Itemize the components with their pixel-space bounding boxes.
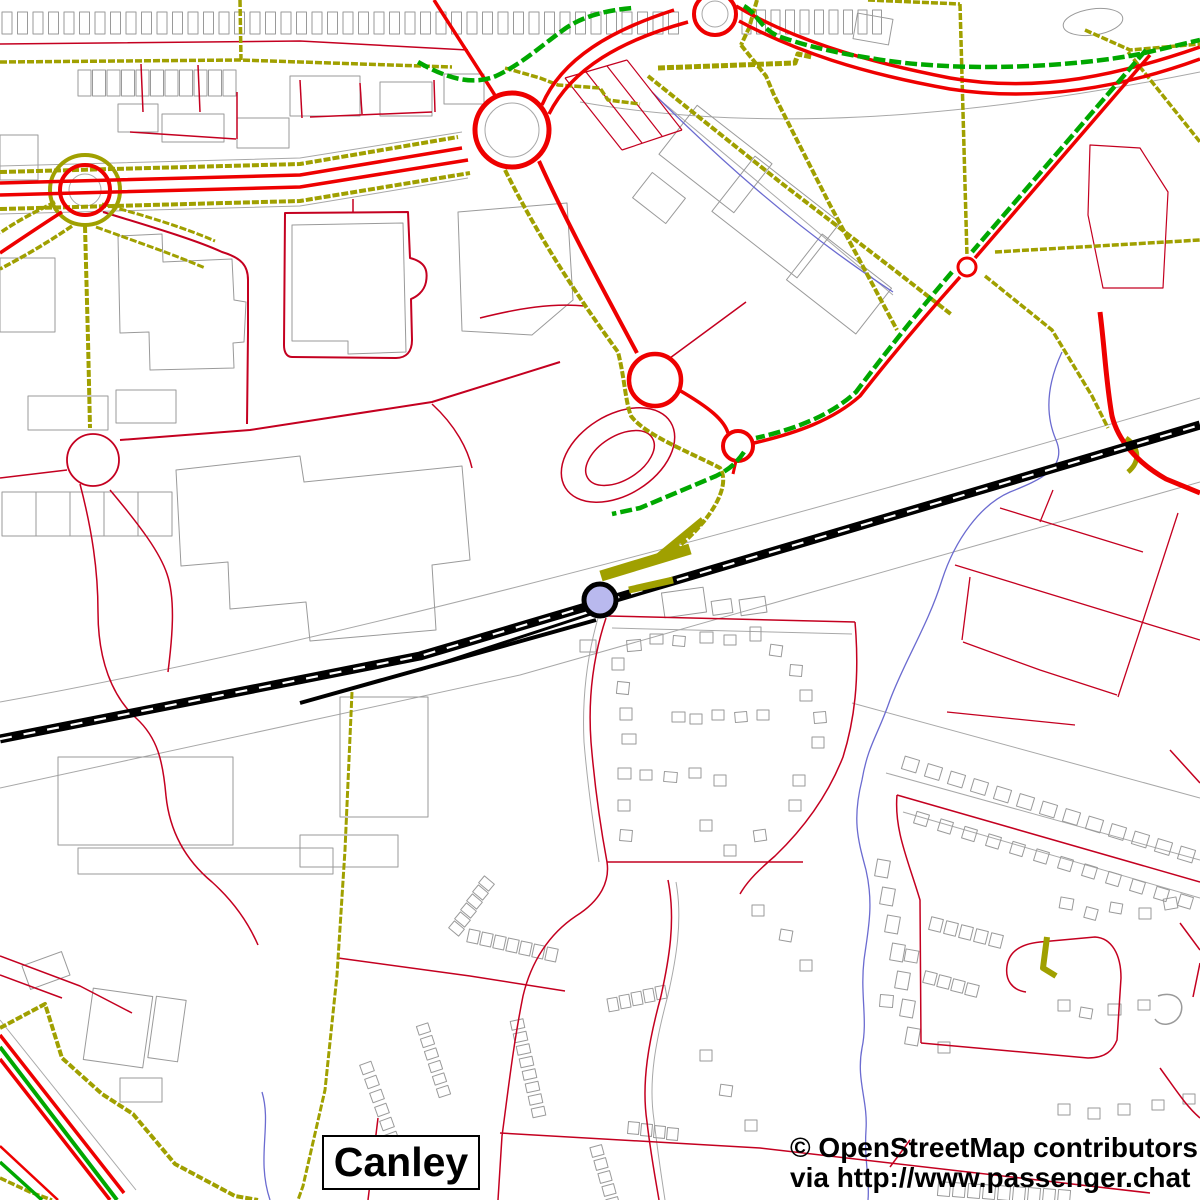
house-row [974,929,989,945]
houses-scattered [757,710,769,720]
minor-road [300,80,302,118]
buildings-bottom-left [148,996,186,1062]
building-station-side [661,587,706,618]
house-row [643,988,655,1003]
map-canvas [0,0,1200,1200]
building-ladder [104,492,138,536]
path-zigzag-top [505,68,640,104]
house-row [506,938,519,953]
terrace-row-top [607,12,617,34]
house-row [598,1171,612,1184]
roundabout-center [629,354,681,406]
houses-scattered [800,960,812,971]
terrace-row-top [467,12,477,34]
roundabout-big [475,93,549,167]
street-s1 [608,616,855,622]
house-row [360,1061,375,1075]
terrace-row-second [165,70,178,96]
houses-scattered [1152,1100,1164,1110]
buildings-left-band [28,396,108,430]
stream-bottom-left [262,1092,270,1200]
house-row [875,859,891,878]
houses-scattered [712,710,724,720]
houses-scattered [779,929,793,942]
house-row [1178,894,1194,909]
houses-scattered [745,1120,757,1131]
terrace-row-second [223,70,236,96]
buildings-bottom-left [340,697,428,817]
station-marker [584,584,616,616]
road-top-lane [0,41,468,50]
terrace-row-top [64,12,74,34]
path-bar-top [658,54,812,68]
houses-scattered [812,737,824,748]
house-row [1131,831,1149,848]
buildings-left-band [116,390,176,423]
house-row [365,1075,380,1089]
building-station-side [711,599,733,616]
terrace-row-top [126,12,136,34]
house-row [519,941,532,956]
terrace-row-second [93,70,106,96]
house-row [1154,839,1172,856]
building-square [292,223,406,354]
house-row [929,917,944,933]
house-row [631,991,643,1006]
house-row [531,1106,546,1118]
houses-scattered [793,775,805,786]
path-topright-vertical [960,4,967,256]
buildings-bottom-left [78,848,333,874]
buildings-top-left [237,118,289,148]
terrace-row-second [194,70,207,96]
houses-scattered [690,714,702,724]
campus-road-south [80,484,166,796]
parking-oval-inner [576,419,664,497]
terrace-row-top [18,12,28,34]
house-row [370,1089,385,1103]
houses-scattered [1109,902,1123,914]
houses-scattered [1079,1007,1093,1019]
path-to-bridge [985,276,1108,428]
path-topright-edge [868,0,960,4]
house-row [895,971,911,990]
building-campus [176,456,470,641]
houses-scattered [1118,1104,1130,1115]
building-east-block [458,203,573,335]
corner-road-b [0,975,62,998]
buildings-top-left [380,82,432,116]
houses-scattered [622,734,636,744]
terrace-row-top [328,12,338,34]
house-row [480,932,493,947]
house-row [959,925,974,941]
house-row [449,921,465,936]
houses-scattered [714,775,726,786]
house-row [1039,801,1057,818]
terrace-row-top [188,12,198,34]
houses-scattered [620,708,632,720]
path-bigroundabout-south [505,170,723,557]
house-row [432,1073,446,1085]
road-southwest-exit [0,212,62,253]
terrace-row-top [297,12,307,34]
house-row [467,929,480,944]
house-row [986,834,1002,849]
campus-link-east [480,305,585,318]
attribution-line-copyright: © OpenStreetMap contributors [790,1133,1198,1163]
houses-scattered [700,1050,712,1061]
terrace-row-top [33,12,43,34]
buildings-slanted-complex [633,172,686,223]
terrace-row-top [483,12,493,34]
house-row [424,1048,438,1060]
campus-road-east [120,362,560,440]
estate-diagonal-casing-1 [852,703,1200,798]
house-row [380,1117,395,1131]
minor-road [141,64,143,112]
terrace-row-top [669,12,679,34]
buildings-slanted-complex [712,156,840,278]
house-row [1016,794,1034,811]
houses-scattered [750,627,761,641]
terrace-row-top-right [844,10,853,34]
houses-scattered [1059,897,1074,910]
path-east-horizontal [995,240,1200,252]
terrace-row-top [157,12,167,34]
house-row [606,1197,620,1200]
cycle-route-top-east [744,6,1200,67]
houses-scattered [618,800,630,811]
terrace-row-top [374,12,384,34]
field-lines [947,490,1200,725]
terrace-row-top [95,12,105,34]
terrace-row-top [219,12,229,34]
roundabout-inner-top [702,1,728,27]
house-row [640,1124,652,1137]
houses-scattered [814,711,827,723]
path-bottomleft-corner [0,1178,52,1200]
estate-road [1180,923,1200,950]
house-row [375,1103,390,1117]
houses-scattered [790,664,803,676]
house-row [479,876,495,891]
house-row [1034,849,1050,864]
house-row [455,912,471,927]
roundabout-inner-big [485,103,539,157]
estate-diagonal-casing-3 [903,812,1200,898]
terrace-row-top [204,12,214,34]
house-row [473,885,489,900]
terrace-row-top [390,12,400,34]
estate-road [1193,963,1200,997]
campus-roundabout [67,434,119,486]
house-row [937,975,952,990]
house-row [924,764,942,781]
terrace-row-top [343,12,353,34]
building-station-side [580,640,596,652]
houses-scattered [616,681,629,694]
houses-scattered [618,768,631,779]
buildings-top-left [118,104,158,132]
building-ladder [138,492,172,536]
street-s7 [338,958,565,991]
slant-boundary-line [660,100,893,295]
campus-road-southeast [110,490,172,672]
terrace-row-top [498,12,508,34]
house-row [467,894,483,909]
terrace-row-top-right [815,10,824,34]
street-casing-s1 [612,628,852,634]
roundabout-mini [958,258,976,276]
house-row [461,903,477,918]
path-vertical-350 [298,692,352,1200]
building-comma [1155,994,1182,1024]
stream-top [652,92,893,292]
house-row [951,979,966,994]
terrace-row-top [80,12,90,34]
terrace-row-top [49,12,59,34]
house-row [493,935,506,950]
house-row [885,915,901,934]
campus-road-west [0,470,67,478]
house-row [900,999,916,1018]
house-row [989,933,1004,949]
terrace-row-top [421,12,431,34]
minor-road [434,80,435,112]
house-row [923,971,938,986]
house-row [666,1128,678,1141]
house-row [965,983,980,998]
path-estate [1043,937,1056,976]
terrace-row-second [151,70,164,96]
terrace-row-top [142,12,152,34]
terrace-row-top [266,12,276,34]
street-casing-s6 [652,882,679,1200]
terrace-row-top [111,12,121,34]
terrace-row-top [173,12,183,34]
houses-scattered [753,829,766,842]
path-diagonal-1 [648,76,952,315]
house-row [416,1023,430,1035]
building-ladder [2,492,36,536]
terrace-row-top [545,12,555,34]
house-row [619,994,631,1009]
house-row [528,1094,543,1106]
minor-road [130,132,236,139]
house-row [890,943,906,962]
houses-scattered [1088,1108,1100,1119]
house-row [1010,841,1026,856]
house-row [590,1145,604,1158]
estate-diagonal-casing-2 [886,773,1200,860]
attribution-line-url: via http://www.passenger.chat [790,1163,1198,1193]
plot-polygon-tr [1088,145,1168,288]
houses-scattered [672,712,685,722]
terrace-row-second [122,70,135,96]
terrace-row-second [107,70,120,96]
houses-scattered [1163,897,1178,910]
houses-scattered [650,634,663,644]
houses-scattered [689,768,701,778]
houses-scattered [880,994,894,1007]
houses-scattered [752,905,764,916]
houses-scattered [673,635,686,646]
terrace-row-top [250,12,260,34]
houses-scattered [620,829,633,841]
house-row [428,1060,442,1072]
terrace-row-second [78,70,91,96]
estate-loop-culdesac [921,937,1121,1058]
house-row [627,1122,639,1135]
house-row [436,1085,450,1097]
house-row [901,756,919,773]
building-blob-topright [1061,5,1124,39]
street-s2 [740,622,857,894]
house-row [944,921,959,937]
path-link-flank-2 [96,227,205,268]
path-top-horizontal [0,60,452,67]
houses-scattered [1138,1000,1150,1010]
terrace-row-top-right [800,10,809,34]
terrace-row-top-right [829,10,838,34]
houses-scattered [769,644,782,657]
terrace-row-second [180,70,193,96]
house-row [545,947,558,962]
terrace-row-second [209,70,222,96]
houses-scattered [735,711,748,722]
houses-scattered [1058,1000,1070,1011]
rail-corridor-south [0,482,1200,788]
house-row [905,1027,921,1046]
minor-road [198,65,200,112]
houses-scattered [640,770,652,780]
houses-scattered [800,690,812,701]
houses-scattered [724,845,736,856]
campus-road-lower [166,796,258,945]
house-row [938,819,954,834]
houses-scattered [904,949,919,963]
campus-road-branch [432,404,472,468]
houses-scattered [938,1042,950,1053]
house-row [962,826,978,841]
terrace-row-top [359,12,369,34]
place-label-canley: Canley [322,1135,480,1190]
estate-road [1160,1068,1200,1118]
house-row [970,779,988,796]
map-attribution: © OpenStreetMap contributors via http://… [790,1133,1198,1192]
houses-scattered [789,800,801,811]
house-row [1106,871,1122,886]
estate-road [1170,750,1200,783]
house-row [880,887,896,906]
buildings-bottom-left [120,1078,162,1102]
house-row [602,1184,616,1197]
terrace-row-top [312,12,322,34]
cycle-route-diagonal-lower [756,272,952,438]
houses-scattered [700,820,712,831]
house-row [1108,824,1126,841]
house-row [993,786,1011,803]
houses-scattered [612,658,624,670]
road-center-to-small [679,390,728,433]
house-row [607,997,619,1012]
house-row [525,1081,540,1093]
houses-scattered [664,771,678,782]
houses-scattered [724,635,736,645]
buildings-bottom-left [83,988,152,1068]
houses-scattered [1058,1104,1070,1115]
map-container: Canley © OpenStreetMap contributors via … [0,0,1200,1200]
street-s3-station-road [498,618,608,1200]
buildings-bottom-left [300,835,398,867]
path-south-to-campus [85,226,90,428]
parking-oval-outer [544,388,692,522]
buildings-bottom-left [22,952,70,990]
terrace-row-top [514,12,524,34]
house-row [594,1158,608,1171]
terrace-row-top [529,12,539,34]
path-vertical-240 [240,0,241,60]
road-diagonal-ne [975,55,1150,258]
houses-scattered [700,632,713,643]
station-platform-2 [629,580,673,590]
railway-siding-2 [420,612,597,670]
roundabout-spur-ne [670,302,746,358]
house-row [947,771,965,788]
terrace-row-top [405,12,415,34]
houses-scattered [1139,908,1151,919]
terrace-row-top-right [873,10,882,34]
house-row [519,1056,534,1068]
houses-scattered [719,1084,732,1097]
road-northeast-1 [542,10,674,105]
terrace-row-top [281,12,291,34]
house-row [522,1069,537,1081]
terrace-row-top [2,12,12,34]
house-row [420,1035,434,1047]
house-row [516,1044,531,1056]
path-main-upper [0,137,458,172]
roundabout-top [694,0,736,35]
estate-diagonal-street [897,795,1200,882]
buildings-left-band [0,258,55,332]
buildings-slanted-complex [786,234,891,334]
houses-scattered [1084,907,1098,921]
building-ladder [36,492,70,536]
